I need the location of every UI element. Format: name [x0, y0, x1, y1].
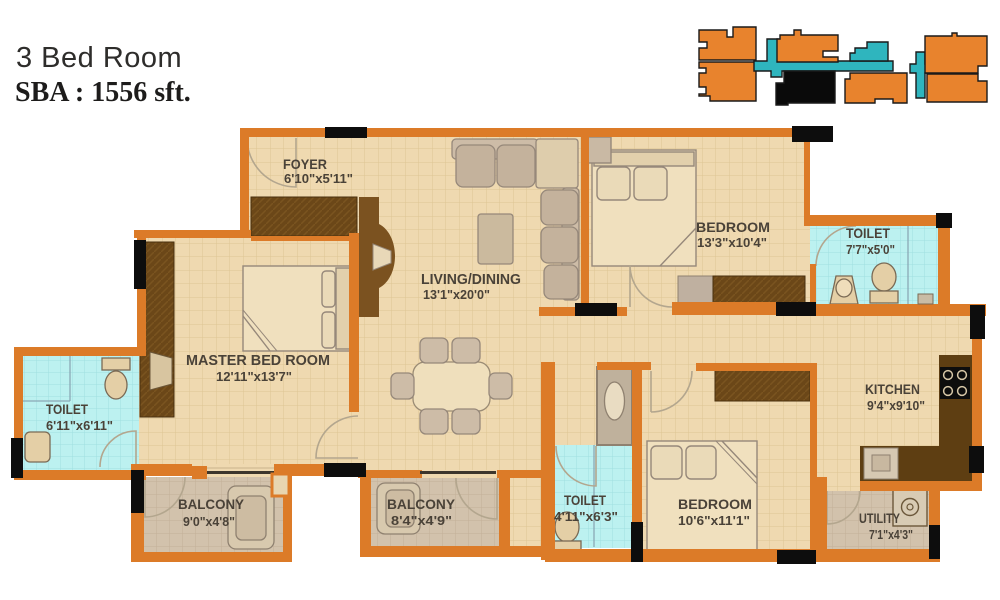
- svg-text:TOILET: TOILET: [846, 226, 891, 241]
- svg-text:7'7"x5'0": 7'7"x5'0": [846, 243, 895, 257]
- svg-text:9'4"x9'10": 9'4"x9'10": [867, 398, 925, 413]
- svg-text:13'1"x20'0": 13'1"x20'0": [423, 287, 490, 302]
- svg-text:SBA : 1556 sft.: SBA : 1556 sft.: [15, 77, 191, 108]
- svg-text:FOYER: FOYER: [283, 156, 327, 172]
- svg-text:LIVING/DINING: LIVING/DINING: [421, 272, 521, 288]
- svg-text:13'3"x10'4": 13'3"x10'4": [697, 235, 767, 250]
- svg-text:6'11"x6'11": 6'11"x6'11": [46, 419, 113, 433]
- svg-text:MASTER BED ROOM: MASTER BED ROOM: [186, 353, 330, 369]
- svg-text:UTILITY: UTILITY: [859, 511, 900, 526]
- svg-text:10'6"x11'1": 10'6"x11'1": [678, 513, 750, 528]
- svg-text:TOILET: TOILET: [564, 493, 607, 508]
- svg-text:6'10"x5'11": 6'10"x5'11": [284, 171, 353, 186]
- svg-text:KITCHEN: KITCHEN: [865, 381, 920, 397]
- svg-text:BALCONY: BALCONY: [387, 496, 456, 512]
- svg-text:BEDROOM: BEDROOM: [678, 496, 752, 512]
- svg-text:4'11"x6'3": 4'11"x6'3": [554, 510, 618, 524]
- svg-text:8'4"x4'9": 8'4"x4'9": [391, 513, 452, 528]
- svg-text:BEDROOM: BEDROOM: [696, 219, 770, 235]
- svg-text:9'0"x4'8": 9'0"x4'8": [183, 514, 235, 529]
- svg-text:BALCONY: BALCONY: [178, 496, 245, 512]
- svg-text:12'11"x13'7": 12'11"x13'7": [216, 369, 292, 384]
- svg-text:3 Bed Room: 3 Bed Room: [16, 42, 182, 74]
- svg-text:TOILET: TOILET: [46, 402, 89, 417]
- svg-text:7'1"x4'3": 7'1"x4'3": [869, 528, 913, 542]
